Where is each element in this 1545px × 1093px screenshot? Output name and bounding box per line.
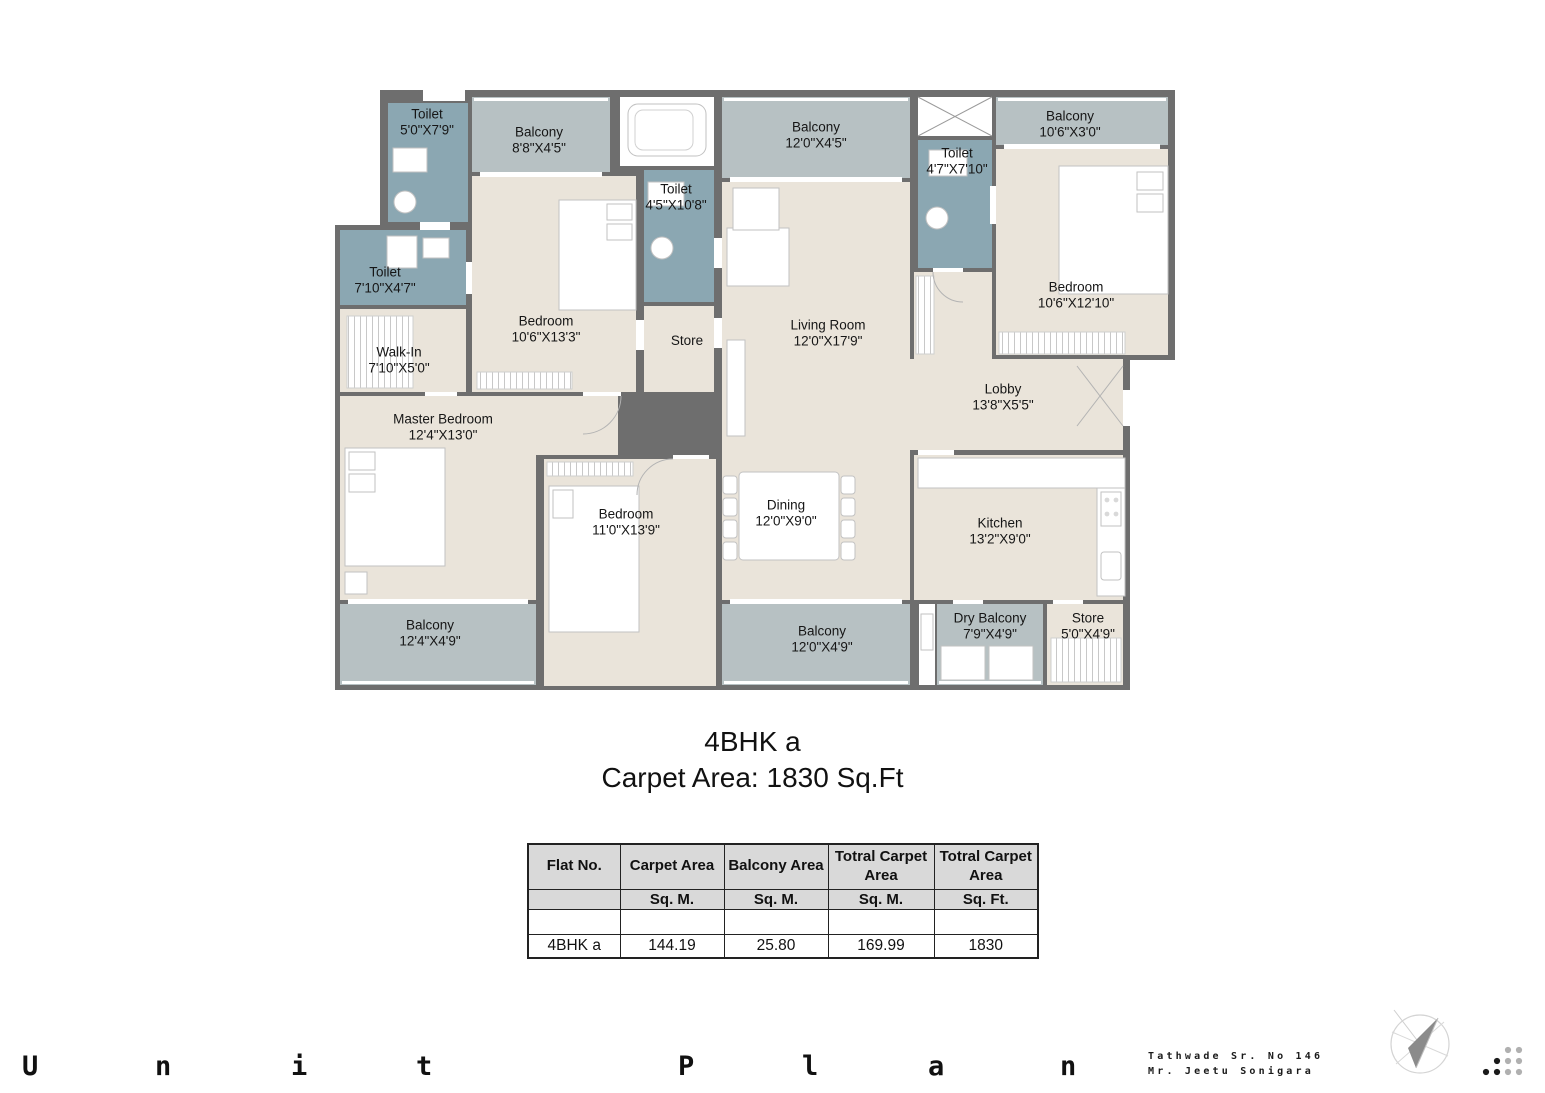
- cell-balcony-area: 25.80: [724, 934, 828, 958]
- header-total-carpet-sqft: Totral Carpet Area: [934, 844, 1038, 889]
- room-label-balcony-top-right: Balcony10'6"X3'0": [1039, 109, 1100, 142]
- room-label-balcony-top-mid: Balcony12'0"X4'5": [785, 120, 846, 153]
- room-label-bedroom-bottom: Bedroom11'0"X13'9": [592, 507, 660, 540]
- table-header-row: Flat No. Carpet Area Balcony Area Totral…: [528, 844, 1038, 889]
- unit-plan-page: Toilet5'0"X7'9" Balcony8'8"X4'5" Toilet4…: [0, 0, 1545, 1093]
- room-label-toilet-top-left: Toilet5'0"X7'9": [400, 107, 454, 140]
- room-fills: [340, 97, 1168, 686]
- unit-name: 4BHK a: [0, 724, 1505, 760]
- cell-total-carpet-sqft: 1830: [934, 934, 1038, 958]
- room-label-lobby: Lobby13'8"X5'5": [972, 382, 1033, 415]
- header-balcony-area: Balcony Area: [724, 844, 828, 889]
- header-total-carpet-sqm: Totral Carpet Area: [828, 844, 934, 889]
- room-label-toilet-right: Toilet4'7"X7'10": [926, 146, 987, 179]
- watermark-letter-t: t: [416, 1051, 432, 1082]
- watermark-letter-n1: n: [155, 1051, 171, 1082]
- site-note-line2: Mr. Jeetu Sonigara: [1148, 1064, 1323, 1079]
- header-carpet-area: Carpet Area: [620, 844, 724, 889]
- compass-north-icon: [1386, 1006, 1454, 1078]
- site-note-line1: Tathwade Sr. No 146: [1148, 1049, 1323, 1064]
- table-data-row: 4BHK a 144.19 25.80 169.99 1830: [528, 934, 1038, 958]
- carpet-area-line: Carpet Area: 1830 Sq.Ft: [0, 760, 1505, 796]
- cell-total-carpet-sqm: 169.99: [828, 934, 934, 958]
- watermark-letter-i: i: [291, 1051, 307, 1082]
- table-units-row: Sq. M. Sq. M. Sq. M. Sq. Ft.: [528, 889, 1038, 909]
- plan-title: 4BHK a Carpet Area: 1830 Sq.Ft: [0, 724, 1505, 796]
- floor-plan: [335, 90, 1180, 690]
- watermark-letter-n2: n: [1060, 1051, 1076, 1082]
- room-label-bedroom-right: Bedroom10'6"X12'10": [1038, 280, 1114, 313]
- dots-grid-logo-icon: [1482, 1044, 1528, 1080]
- room-label-balcony-top-left: Balcony8'8"X4'5": [512, 125, 566, 158]
- room-label-walk-in: Walk-In7'10"X5'0": [368, 345, 429, 378]
- watermark-letter-a: a: [928, 1051, 944, 1082]
- cell-carpet-area: 144.19: [620, 934, 724, 958]
- room-label-toilet-left: Toilet7'10"X4'7": [354, 265, 415, 298]
- cell-flat-no: 4BHK a: [528, 934, 620, 958]
- room-label-kitchen: Kitchen13'2"X9'0": [969, 516, 1030, 549]
- header-flat-no: Flat No.: [528, 844, 620, 889]
- table-blank-row: [528, 909, 1038, 934]
- room-label-balcony-bottom-left: Balcony12'4"X4'9": [399, 618, 460, 651]
- watermark-letter-u: U: [22, 1051, 38, 1082]
- room-label-living-room: Living Room12'0"X17'9": [790, 318, 865, 351]
- room-label-toilet-mid: Toilet4'5"X10'8": [645, 182, 706, 215]
- room-label-store-top: Store: [671, 333, 703, 349]
- room-label-master-bedroom: Master Bedroom12'4"X13'0": [393, 412, 493, 445]
- room-label-dining: Dining12'0"X9'0": [755, 498, 816, 531]
- room-label-balcony-bottom-mid: Balcony12'0"X4'9": [791, 624, 852, 657]
- watermark-letter-p: P: [678, 1051, 694, 1082]
- watermark-letter-l: l: [802, 1051, 818, 1082]
- floor-plan-drawing: [335, 90, 1180, 690]
- room-label-dry-balcony: Dry Balcony7'9"X4'9": [954, 611, 1027, 644]
- site-note: Tathwade Sr. No 146 Mr. Jeetu Sonigara: [1148, 1049, 1323, 1079]
- room-label-bedroom-top: Bedroom10'6"X13'3": [512, 314, 581, 347]
- area-table: Flat No. Carpet Area Balcony Area Totral…: [527, 843, 1039, 959]
- room-label-store-bottom: Store5'0"X4'9": [1061, 611, 1115, 644]
